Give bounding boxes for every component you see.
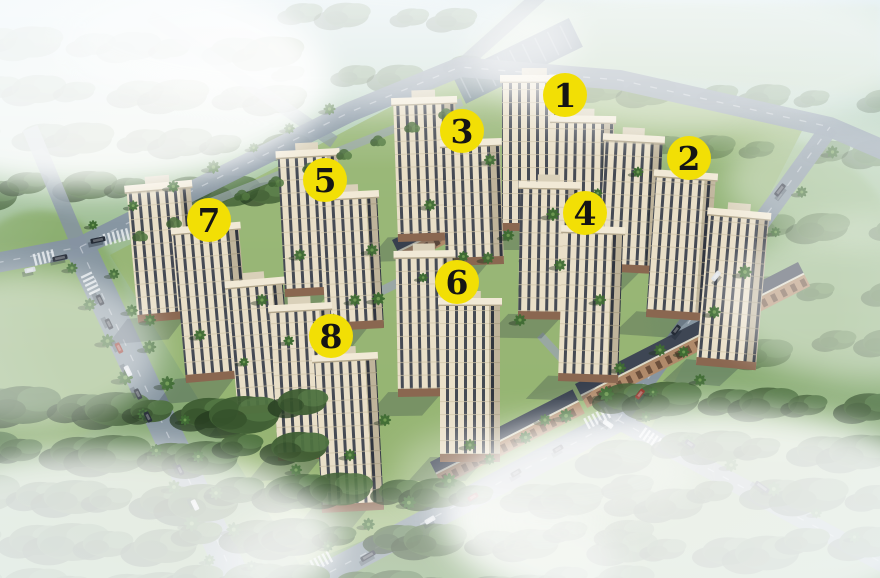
- building-marker-6[interactable]: 6: [435, 260, 479, 304]
- building-marker-5[interactable]: 5: [303, 158, 347, 202]
- building-marker-1[interactable]: 1: [543, 73, 587, 117]
- building-marker-4[interactable]: 4: [563, 191, 607, 235]
- building-marker-2[interactable]: 2: [667, 136, 711, 180]
- aerial-render: 12345678: [0, 0, 880, 578]
- building-marker-8[interactable]: 8: [309, 314, 353, 358]
- building-marker-7[interactable]: 7: [187, 198, 231, 242]
- building-marker-3[interactable]: 3: [440, 109, 484, 153]
